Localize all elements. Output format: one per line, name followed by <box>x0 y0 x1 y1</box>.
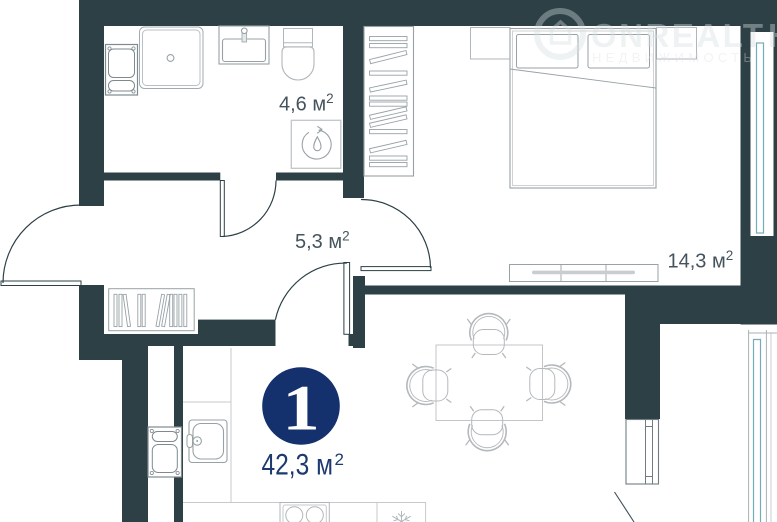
svg-text:1: 1 <box>282 373 319 444</box>
svg-text:5,3 м2: 5,3 м2 <box>295 229 350 254</box>
svg-text:ONREALT: ONREALT <box>591 17 766 54</box>
svg-text:НЕДВИЖИМОСТЬ: НЕДВИЖИМОСТЬ <box>592 50 756 65</box>
svg-text:14,3 м2: 14,3 м2 <box>668 248 734 273</box>
svg-text:42,3 м: 42,3 м <box>262 449 334 482</box>
svg-text:2: 2 <box>335 450 344 469</box>
svg-text:4,6 м2: 4,6 м2 <box>279 91 334 116</box>
svg-text:Н: Н <box>768 17 777 54</box>
